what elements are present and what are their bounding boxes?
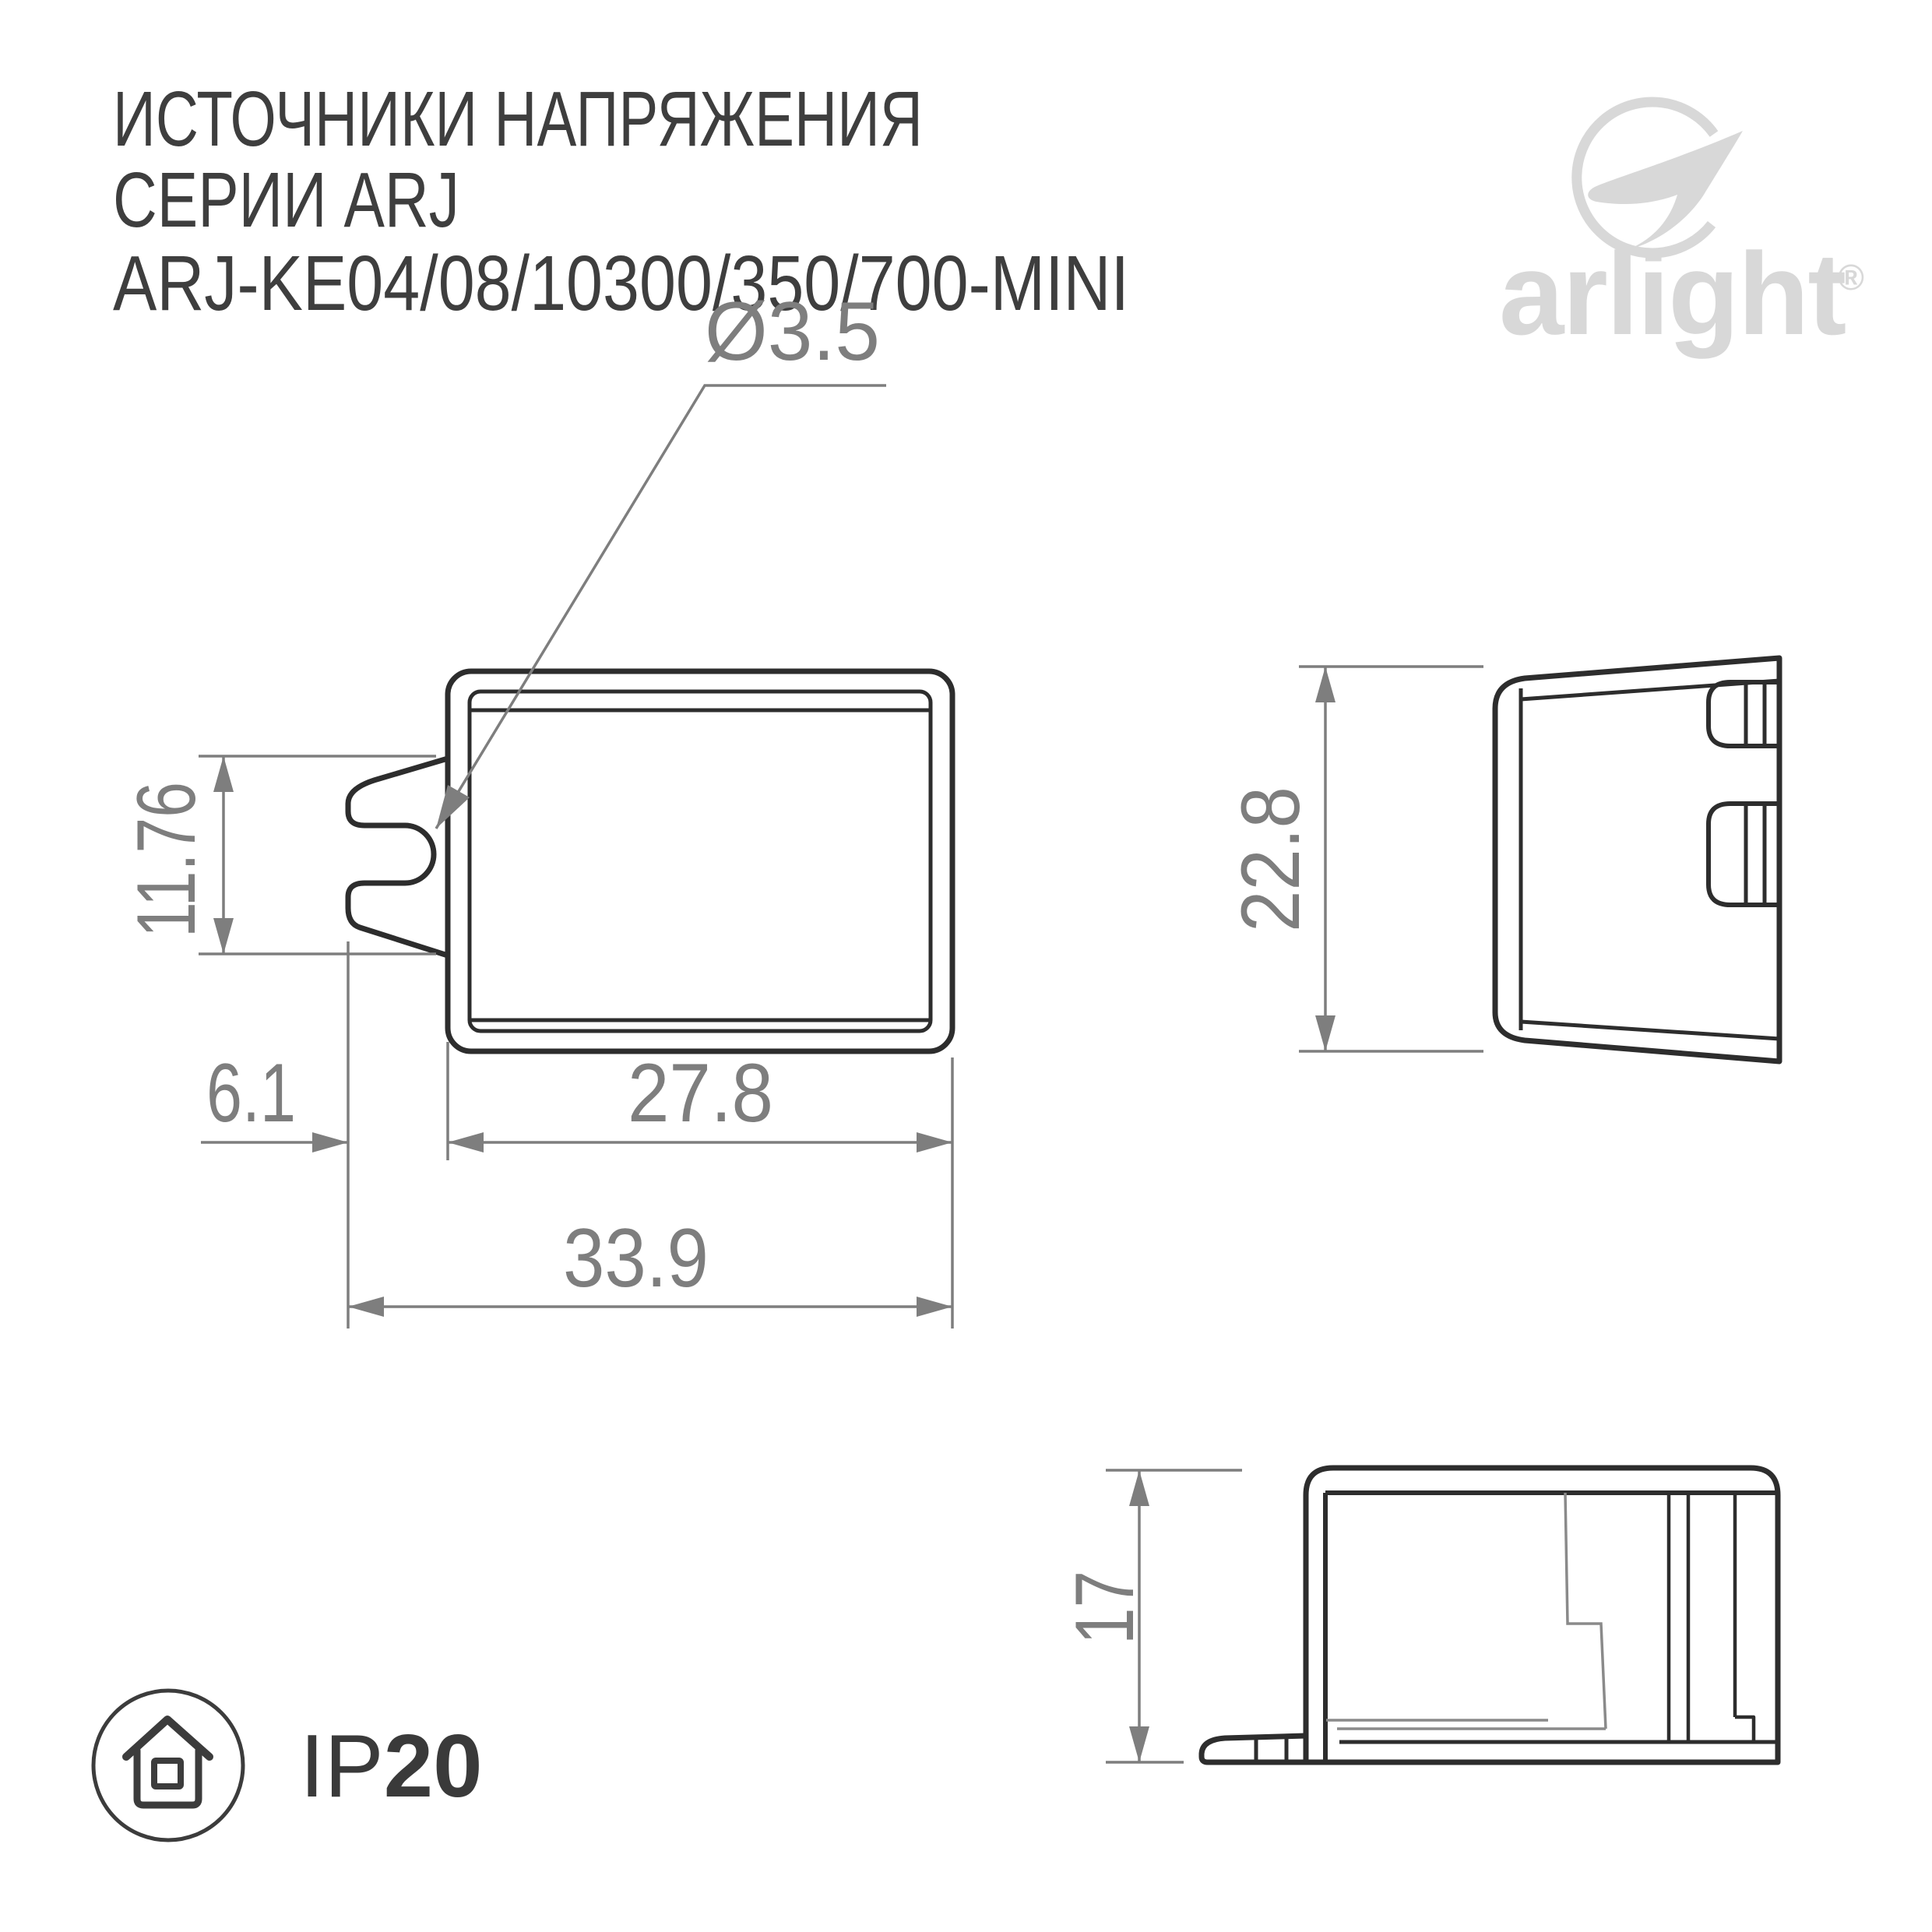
arrow-right-icon (312, 1132, 348, 1153)
dimension-overall-width: 33.9 (348, 1211, 952, 1317)
logo-wordmark: arlight (1499, 228, 1846, 359)
profile-view-mounting-foot (1202, 1736, 1306, 1762)
arrow-left-icon (448, 1132, 484, 1153)
dimension-clip-span: 11.76 (119, 756, 436, 954)
front-view (348, 671, 952, 1051)
dimension-profile-height: 17 (1057, 1470, 1242, 1762)
arrow-down-icon (1315, 1015, 1336, 1051)
arrow-right-icon (917, 1132, 952, 1153)
arlight-logo: arlight ® (1499, 102, 1864, 359)
arrow-up-icon (1129, 1470, 1149, 1506)
profile-view (1202, 1468, 1778, 1762)
page-title-line2: СЕРИИ ARJ (113, 157, 459, 244)
page-title-line1: ИСТОЧНИКИ НАПРЯЖЕНИЯ (113, 76, 923, 163)
dimension-label-body-width: 27.8 (628, 1046, 773, 1139)
dimension-label-profile-height: 17 (1057, 1571, 1151, 1645)
profile-view-outline (1306, 1468, 1778, 1762)
front-view-inner-outline (470, 692, 931, 1031)
callout-hole-diameter: Ø3.5 (436, 284, 886, 829)
side-view-bottom-inner-line (1521, 1022, 1779, 1039)
front-view-outer-outline (448, 671, 952, 1051)
ip-code: IP (300, 1717, 384, 1816)
arrow-down-icon (1129, 1726, 1149, 1762)
leader-arrow-icon (436, 785, 470, 829)
ip-rating-badge: IP20 (93, 1691, 483, 1840)
datasheet-page: ИСТОЧНИКИ НАПРЯЖЕНИЯ СЕРИИ ARJ ARJ-KE04/… (0, 0, 1932, 1932)
badge-circle (93, 1691, 243, 1840)
arrow-down-icon (213, 918, 234, 954)
ip-rating-text: IP20 (300, 1717, 483, 1816)
front-view-mounting-clip (348, 758, 448, 955)
dimension-side-height: 22.8 (1223, 667, 1483, 1051)
dimension-label-side-height: 22.8 (1223, 787, 1317, 932)
side-view-outline (1495, 658, 1779, 1061)
dimension-label-clip-offset: 6.1 (206, 1046, 296, 1139)
dimension-label-overall-width: 33.9 (563, 1211, 709, 1304)
arrow-up-icon (1315, 667, 1336, 702)
internal-board-edge (1565, 1493, 1606, 1729)
ip-value: 20 (384, 1717, 483, 1816)
arrow-left-icon (348, 1297, 384, 1317)
title-block: ИСТОЧНИКИ НАПРЯЖЕНИЯ СЕРИИ ARJ ARJ-KE04/… (113, 76, 1129, 327)
registered-trademark-icon: ® (1838, 257, 1864, 297)
technical-drawing: ИСТОЧНИКИ НАПРЯЖЕНИЯ СЕРИИ ARJ ARJ-KE04/… (0, 0, 1932, 1932)
arrow-right-icon (917, 1297, 952, 1317)
side-view (1495, 658, 1779, 1061)
leader-line (436, 385, 886, 829)
page-title-line3: ARJ-KE04/08/10300/350/700-MINI (113, 240, 1129, 327)
house-icon (126, 1719, 209, 1805)
arrow-up-icon (213, 756, 234, 792)
dimension-label-hole-diameter: Ø3.5 (705, 284, 880, 378)
profile-right-step (1735, 1717, 1754, 1742)
dimension-clip-offset: 6.1 (201, 941, 448, 1328)
dimension-label-clip-span: 11.76 (119, 782, 213, 938)
